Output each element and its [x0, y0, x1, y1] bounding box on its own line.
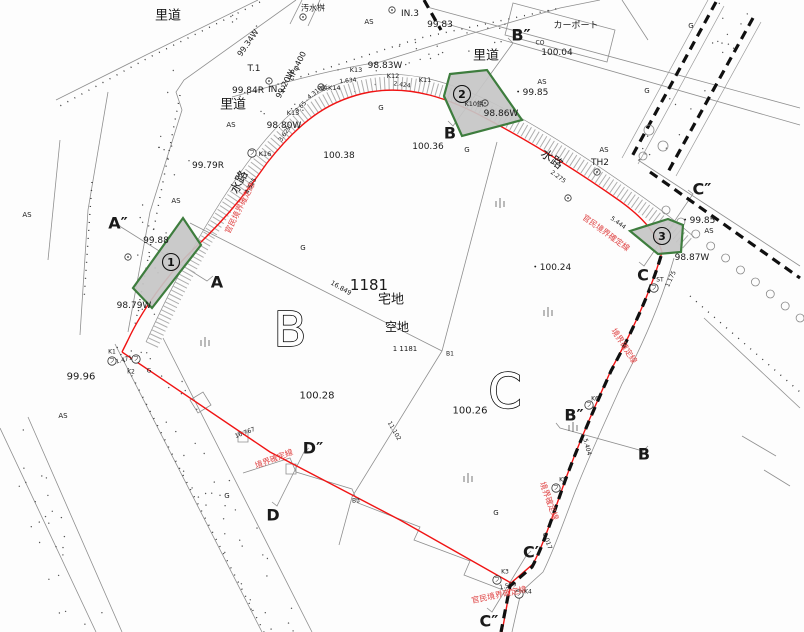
grass-symbol-icon [544, 307, 552, 317]
stipple-dot [158, 147, 159, 148]
map-label-elev-100-38: 100.38 [323, 151, 355, 161]
map-label-sec-c1: C′ [523, 543, 539, 562]
stipple-dot [31, 526, 32, 527]
stipple-dot [204, 453, 205, 454]
map-label-d-1634: 1.634 [339, 77, 357, 86]
map-label-sec-b-right: B [638, 445, 650, 464]
map-label-as-7: AS [704, 227, 714, 235]
map-label-elev-98-86w: 98.86W [484, 109, 519, 119]
survey-tick-chains [58, 2, 800, 632]
hedge-circle-icon [751, 278, 759, 286]
map-label-sec-d: D [266, 506, 279, 525]
map-label-g-5: G [147, 368, 152, 375]
stipple-dot [168, 387, 169, 388]
stipple-dot [399, 46, 400, 47]
map-label-k1: K1 [108, 349, 116, 356]
stipple-dot [61, 517, 62, 518]
stipple-dot [747, 13, 748, 14]
grass-symbol-icon [201, 337, 209, 347]
stipple-dot [256, 527, 257, 528]
map-label-elev-99-20w: 99.20W [274, 68, 296, 100]
hedge-circle-icon [722, 254, 730, 262]
stipple-dot [62, 547, 63, 548]
stipple-dot [733, 48, 734, 49]
map-label-d-365: 3.65 [294, 100, 308, 115]
map-label-parcel-b: B [274, 302, 307, 358]
stipple-dot [140, 217, 141, 218]
stipple-dot [137, 254, 138, 255]
stipple-dot [266, 575, 267, 576]
stipple-dot [504, 24, 505, 25]
stipple-dot [442, 52, 443, 53]
grass-symbol-icon [496, 198, 504, 208]
stipple-dot [487, 27, 488, 28]
stipple-dot [148, 225, 149, 226]
stipple-dot [415, 42, 416, 43]
stipple-dot [65, 611, 66, 612]
stipple-dot [494, 42, 495, 43]
map-label-elev-99-85a: ・99.85 [514, 88, 549, 98]
stipple-dot [236, 18, 237, 19]
stipple-dot [46, 477, 47, 478]
stipple-dot [466, 32, 467, 33]
map-label-elev-100-04: 100.04 [541, 48, 573, 58]
stipple-dot [175, 431, 176, 432]
grass-symbol-icon [464, 473, 472, 483]
fu-marker-icon-1: フ [132, 355, 140, 363]
stipple-dot [174, 174, 175, 175]
stipple-dot [55, 546, 56, 547]
map-label-as-4: AS [22, 211, 32, 219]
stipple-dot [185, 390, 186, 391]
stipple-dot [142, 204, 143, 205]
map-label-elev-100-24: ・100.24 [531, 263, 572, 273]
stipple-dot [675, 104, 676, 105]
stipple-dot [250, 609, 251, 610]
map-label-elev-99-83: 99.83 [427, 20, 453, 30]
stipple-dot [58, 575, 59, 576]
stipple-dot [35, 501, 36, 502]
map-label-as-5: AS [599, 146, 609, 154]
stipple-dot [160, 136, 161, 137]
map-label-sec-b-top: B [444, 124, 456, 143]
map-label-as-3: AS [171, 197, 181, 205]
map-label-as-8: AS [58, 412, 68, 420]
stipple-dot [198, 496, 199, 497]
stipple-dot [292, 630, 293, 631]
map-label-elev-99-34w: 99.34W [235, 28, 260, 58]
map-label-th2: TH2 [590, 158, 609, 168]
map-label-k11: K11 [419, 76, 432, 84]
hedge-circle-icon [781, 302, 789, 310]
stipple-dot [167, 92, 168, 93]
svg-text:フ: フ [651, 284, 657, 291]
fu-marker-icon-5: フ [493, 576, 501, 584]
stipple-dot [468, 50, 469, 51]
stipple-dot [727, 34, 728, 35]
stipple-dot [722, 18, 723, 19]
map-label-elev-100-26: 100.26 [453, 406, 488, 417]
map-label-sec-d2: D″ [303, 439, 323, 458]
map-label-sec-a2: A″ [108, 214, 128, 233]
map-label-rido-2: 里道 [473, 49, 499, 64]
stipple-dot [288, 622, 289, 623]
stipple-dot [721, 42, 722, 43]
stipple-dot [262, 554, 263, 555]
stipple-dot [704, 90, 705, 91]
map-label-red-2: 官民境界確定線 [581, 212, 632, 253]
stipple-dot [214, 481, 215, 482]
map-label-as-1: AS [364, 18, 374, 26]
stipple-dot [39, 542, 40, 543]
stipple-dot [260, 111, 261, 112]
stipple-dot [270, 628, 271, 629]
stipple-dot [19, 486, 20, 487]
hedge-circle-icon [662, 206, 670, 214]
map-label-d-2424: 2.424 [393, 80, 411, 89]
stipple-dot [647, 136, 648, 137]
stipple-dot [224, 505, 225, 506]
map-label-carport: カーポート [553, 20, 598, 31]
map-label-t1: T.1 [246, 64, 260, 74]
stipple-dot [405, 64, 406, 65]
map-label-d-5444: 5.444 [609, 215, 627, 231]
svg-text:フ: フ [133, 355, 139, 362]
map-label-k3: K3 [501, 569, 509, 576]
stipple-dot [146, 352, 147, 353]
map-label-elev-99-88: 99.88 [143, 236, 169, 246]
stipple-dot [740, 23, 741, 24]
map-label-g-7: G [224, 492, 229, 500]
map-label-k5: K5 [559, 477, 567, 484]
map-label-elev-100-36: 100.36 [412, 142, 444, 152]
map-label-sec-b2-top: B″ [511, 26, 530, 45]
stipple-dot [154, 314, 155, 315]
stipple-dot [163, 149, 164, 150]
stipple-dot [47, 495, 48, 496]
map-label-rido-3: 里道 [220, 98, 246, 113]
stipple-dot [337, 69, 338, 70]
stipple-dot [39, 521, 40, 522]
stipple-dot [235, 509, 236, 510]
fu-marker-icon-3: フ [552, 484, 560, 492]
stipple-dot [719, 3, 720, 4]
stipple-dot [84, 624, 85, 625]
hedge-circle-icon [707, 242, 715, 250]
map-label-g-8: G [493, 509, 498, 517]
stipple-dot [679, 134, 680, 135]
shrub-circle-icon [639, 152, 647, 160]
map-label-akichi: 空地 [385, 320, 409, 334]
map-label-sec-c-top: C [637, 266, 649, 285]
highlight-parcel-strip-3 [630, 219, 683, 254]
stipple-dot [250, 599, 251, 600]
map-label-g-3: G [688, 22, 693, 30]
stipple-dot [48, 579, 49, 580]
stipple-dot [712, 42, 713, 43]
stipple-dot [265, 612, 266, 613]
stipple-dot [242, 545, 243, 546]
map-label-d-2275: 2.275 [549, 169, 567, 185]
map-label-elev-99-96: 99.96 [67, 372, 96, 383]
map-label-k4: K4 [524, 589, 532, 596]
map-label-k16: K16 [259, 150, 272, 158]
map-label-elev-100-28: 100.28 [300, 391, 335, 402]
stipple-dot [430, 58, 431, 59]
hedge-circle-icon [692, 230, 700, 238]
map-label-g-6: G [300, 244, 305, 252]
stipple-dot [728, 44, 729, 45]
shrub-circle-icon [658, 141, 668, 151]
map-label-b1: B1 [446, 351, 454, 358]
hedge-circle-icon [796, 314, 804, 322]
map-label-lot-1181: 1181 [350, 276, 388, 294]
svg-text:1: 1 [167, 256, 175, 269]
map-label-k13: K13 [350, 66, 363, 74]
map-label-k10: K10鋲 [464, 99, 484, 108]
confirmed-boundary-red-line [122, 90, 662, 632]
stipple-dot [52, 511, 53, 512]
map-label-d-4318: 4.318 [306, 85, 324, 101]
map-label-g-2: G [464, 146, 469, 154]
map-label-sec-a: A [211, 273, 224, 292]
map-label-elev-98-79w: 98.79W [117, 301, 152, 311]
map-label-as-2: AS [226, 121, 236, 129]
map-label-red-5: 境界確定線 [609, 326, 639, 365]
stipple-dot [183, 471, 184, 472]
stipple-dot [64, 536, 65, 537]
hedge-circle-icon [766, 290, 774, 298]
map-label-k2: K2 [127, 369, 135, 376]
svg-text:フ: フ [249, 149, 255, 156]
map-label-k12: K12 [387, 72, 400, 80]
map-label-d-1175: 1.175 [664, 270, 678, 289]
benchmark-icon-0 [300, 14, 306, 20]
svg-text:フ: フ [553, 484, 559, 491]
waterway-hatched-band [146, 74, 694, 345]
stipple-dot [205, 493, 206, 494]
stipple-dot [717, 41, 718, 42]
stipple-dot [48, 523, 49, 524]
svg-text:フ: フ [494, 576, 500, 583]
stipple-dot [142, 222, 143, 223]
map-label-sec-b2-right: B″ [564, 406, 583, 425]
map-label-d-16767: 16.767 [234, 426, 256, 440]
stipple-dot [219, 495, 220, 496]
stipple-dot [409, 62, 410, 63]
map-label-sec-c2-bot: C″ [480, 612, 499, 631]
map-label-co: CO [536, 40, 545, 47]
stipple-dot [211, 493, 212, 494]
map-label-elev-98-87w: 98.87W [675, 253, 710, 263]
map-label-rido-1: 里道 [155, 9, 181, 24]
hedge-circle-icon [737, 266, 745, 274]
stipple-dot [223, 518, 224, 519]
map-label-as-6: AS [537, 78, 547, 86]
stipple-dot [25, 482, 26, 483]
stipple-dot [191, 487, 192, 488]
stipple-dot [23, 468, 24, 469]
stipple-dot [500, 41, 501, 42]
stipple-dot [690, 108, 691, 109]
map-label-parcel-c: C [488, 364, 522, 420]
stipple-dot [232, 21, 233, 22]
benchmark-icon-5 [565, 195, 571, 201]
stipple-dot [229, 480, 230, 481]
stipple-dot [196, 409, 197, 410]
stipple-dot [232, 15, 233, 16]
stipple-dot [101, 612, 102, 613]
stipple-dot [141, 352, 142, 353]
stipple-dot [165, 232, 166, 233]
parcel-linework [0, 0, 800, 632]
stipple-dot [267, 558, 268, 559]
map-label-in2: IN.2 [268, 85, 286, 95]
stipple-dot [256, 25, 257, 26]
stipple-dot [131, 350, 132, 351]
stipple-dot [173, 70, 174, 71]
stipple-dot [181, 381, 182, 382]
map-label-st: ST [656, 277, 664, 284]
map-label-b3: B3 [352, 498, 360, 505]
map-label-elev-99-85b: ・99.85 [681, 216, 716, 226]
stipple-dot [150, 358, 151, 359]
stipple-dot [195, 443, 196, 444]
stipple-dot [166, 422, 167, 423]
stipple-dot [205, 504, 206, 505]
stipple-dot [428, 54, 429, 55]
stipple-dot [722, 52, 723, 53]
map-label-osuimasu: 汚水桝 [301, 3, 325, 13]
stipple-dot [149, 256, 150, 257]
stipple-dot [59, 612, 60, 613]
stipple-dot [41, 475, 42, 476]
map-label-takuchi: 宅地 [378, 293, 404, 308]
stipple-dot [45, 516, 46, 517]
stipple-dot [161, 375, 162, 376]
map-label-elev-99-79r: 99.79R [192, 161, 224, 171]
stipple-dot [183, 455, 184, 456]
map-label-elev-98-83w: 98.83W [368, 61, 403, 71]
stipple-dot [649, 154, 650, 155]
stipple-dot [239, 540, 240, 541]
stipple-dot [224, 533, 225, 534]
map-label-d-5404: 5.404 [581, 438, 592, 457]
stipple-dot [642, 148, 643, 149]
map-label-k14: 鋲K14 [321, 83, 340, 92]
stipple-dot [420, 59, 421, 60]
map-label-g-4: G [644, 87, 649, 95]
stipple-dot [224, 552, 225, 553]
map-label-in3: IN.3 [401, 9, 419, 19]
stipple-dot [62, 554, 63, 555]
stipple-dot [294, 104, 295, 105]
stipple-dot [188, 160, 189, 161]
map-label-sec-c2-top: C″ [693, 180, 712, 199]
benchmark-icon-2 [266, 78, 272, 84]
map-label-lot-ref: 1 1181 [393, 345, 418, 353]
stipple-dot [171, 145, 172, 146]
stipple-dot [23, 429, 24, 430]
map-label-g-1: G [378, 104, 383, 112]
stipple-dot [264, 113, 265, 114]
stipple-dot [241, 583, 242, 584]
map-label-suiro-2: 水路 [538, 145, 566, 171]
benchmark-icon-4 [125, 254, 131, 260]
survey-map-page: フフフフフフフフ 123 里道汚水桝ASIN.399.83B″COカーポート10… [0, 0, 804, 632]
fu-marker-icon-2: フ [248, 149, 256, 157]
stipple-dot [291, 608, 292, 609]
stipple-dot [416, 48, 417, 49]
stipple-dot [669, 98, 670, 99]
stipple-dot [499, 28, 500, 29]
svg-text:3: 3 [658, 230, 666, 243]
map-label-k6: K6 [591, 396, 599, 403]
map-labels: 里道汚水桝ASIN.399.83B″COカーポート100.04里道99.34WT… [22, 3, 715, 631]
map-label-elev-99-84r: 99.84R [232, 86, 264, 96]
benchmark-icon-1 [389, 7, 395, 13]
fu-marker-icon-7: フ [650, 284, 658, 292]
stipple-dot [437, 46, 438, 47]
cadastral-map-canvas: フフフフフフフフ 123 里道汚水桝ASIN.399.83B″COカーポート10… [0, 0, 804, 632]
map-label-d-1471: 1.471 [115, 354, 134, 365]
benchmark-icon-3 [594, 169, 600, 175]
stipple-dot [438, 54, 439, 55]
